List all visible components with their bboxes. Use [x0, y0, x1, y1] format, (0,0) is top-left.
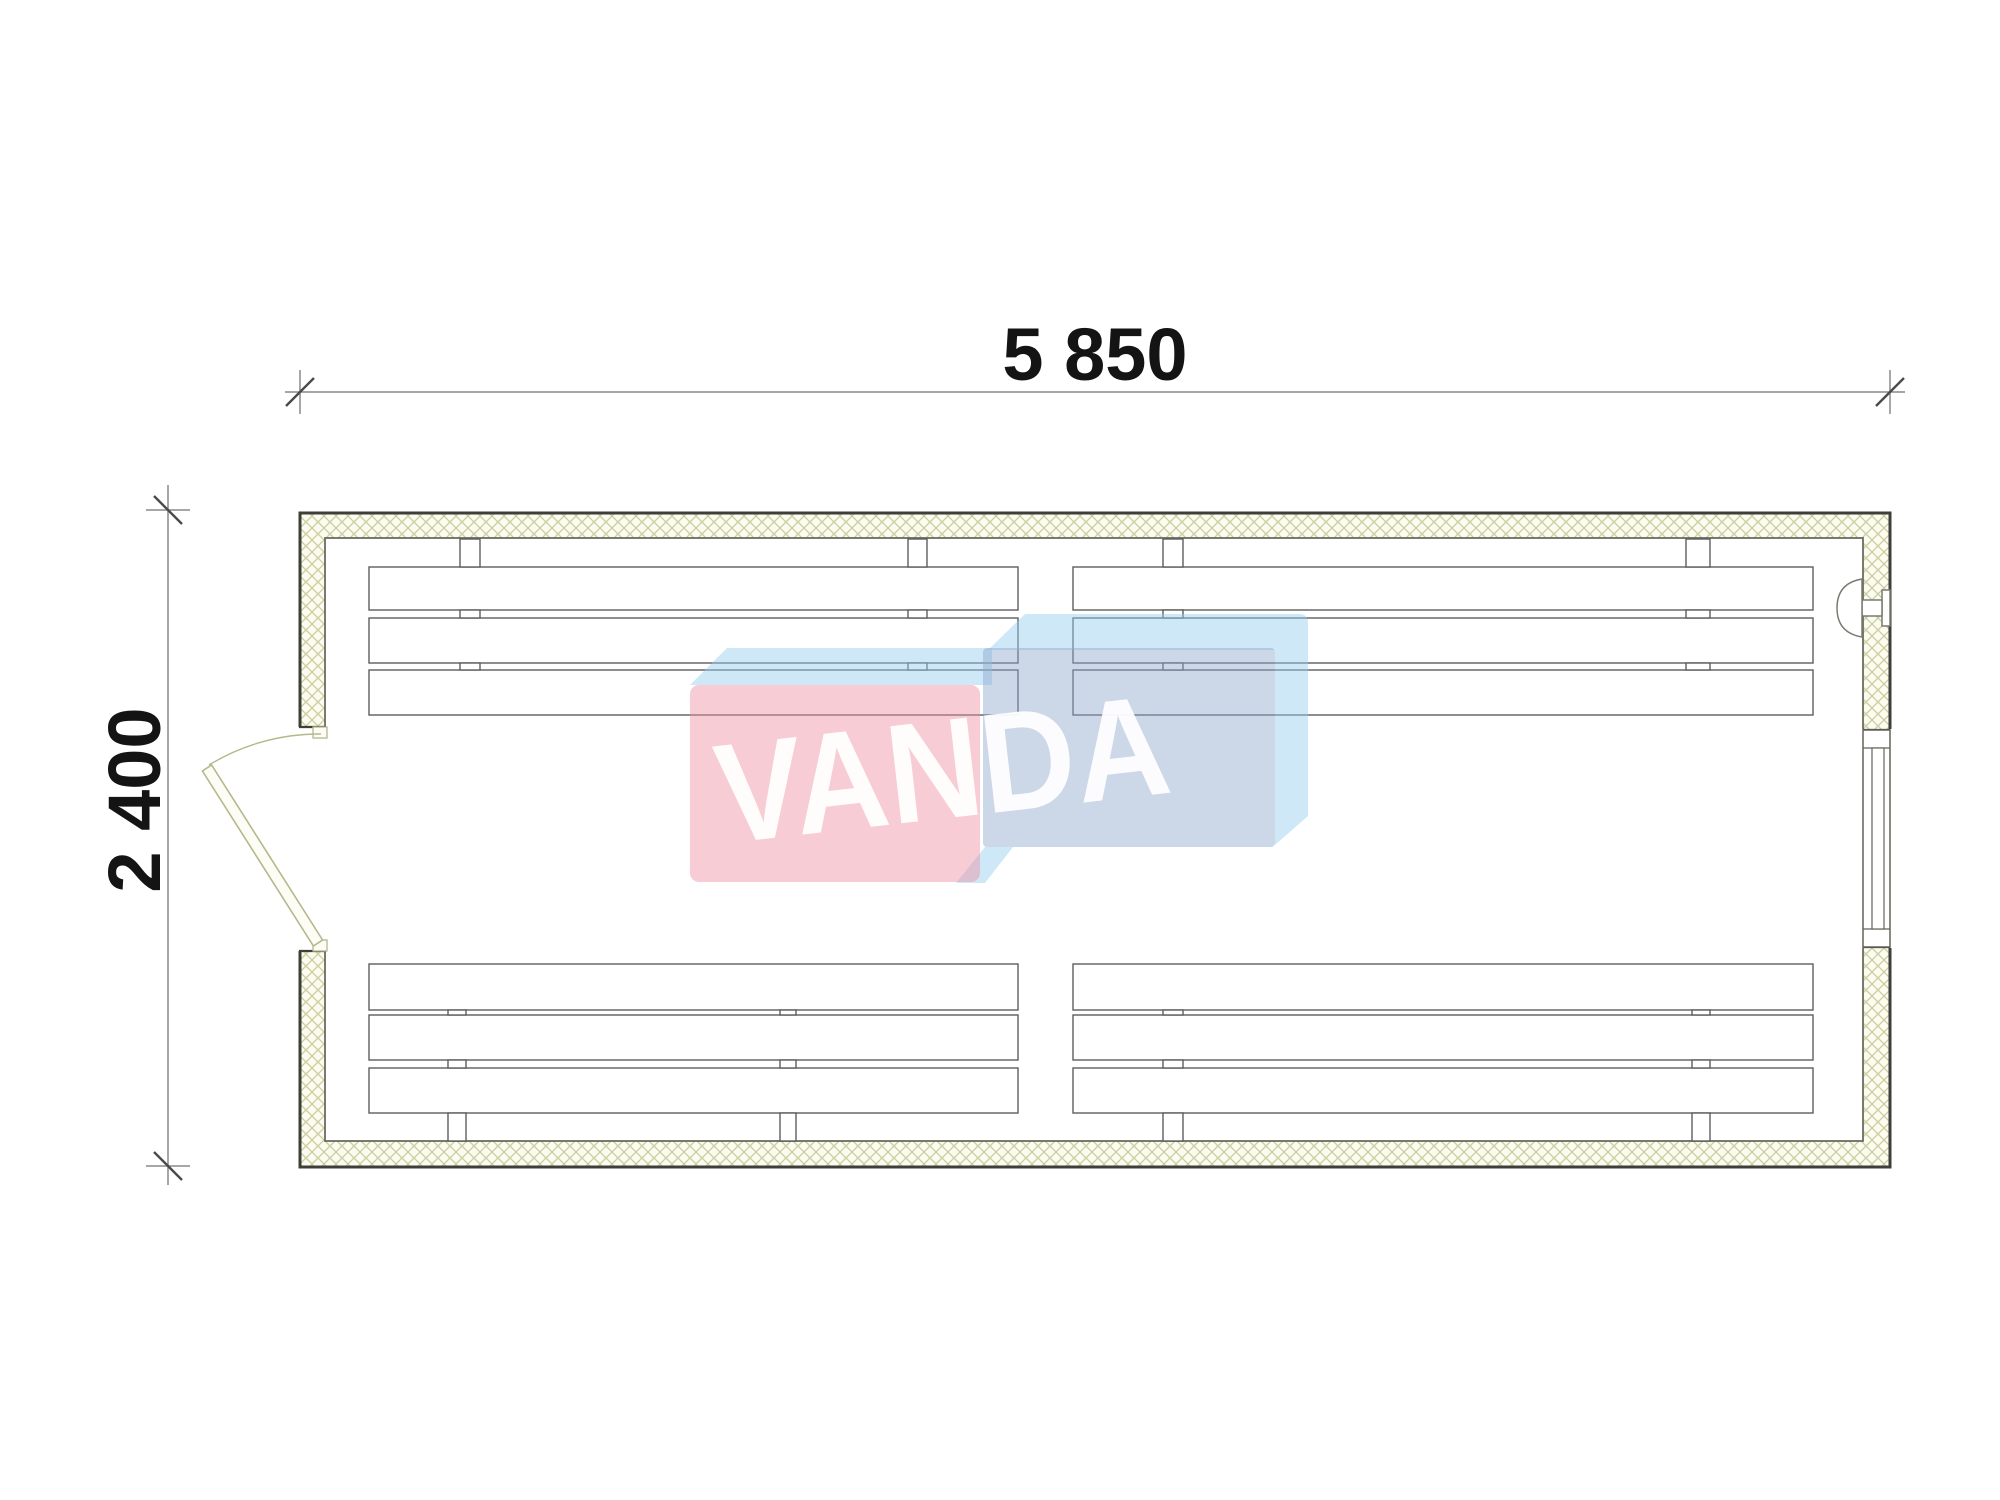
- bench-post: [1686, 610, 1710, 618]
- window-glazing: [1872, 748, 1884, 929]
- dimension-width-label: 5 850: [1002, 313, 1187, 396]
- bench-slat: [369, 567, 1018, 610]
- bench-post: [1692, 1060, 1710, 1068]
- bench-post: [908, 539, 927, 567]
- bench-post: [1163, 1010, 1183, 1015]
- bench-post: [1163, 1113, 1183, 1141]
- bench-bottom-left: [369, 964, 1018, 1141]
- bench-post: [780, 1010, 796, 1015]
- dimension-width: 5 850: [285, 313, 1905, 414]
- bench-post: [1163, 539, 1183, 567]
- bench-post: [448, 1010, 466, 1015]
- floor-plan-canvas: 5 850 2 400: [0, 0, 2000, 1500]
- bench-post: [460, 539, 480, 567]
- logo-top-band: [690, 648, 992, 685]
- bench-post: [1163, 1060, 1183, 1068]
- window-right: [1861, 729, 1892, 948]
- bench-bottom-right: [1073, 964, 1813, 1141]
- bench-post: [448, 1060, 466, 1068]
- drawing-page: 5 850 2 400: [0, 0, 2000, 1500]
- bench-post: [1692, 1113, 1710, 1141]
- bench-slat: [369, 1068, 1018, 1113]
- bench-post: [460, 663, 480, 670]
- bench-post: [908, 610, 927, 618]
- bench-post: [448, 1113, 466, 1141]
- door-frame-tab: [313, 727, 327, 738]
- bench-post: [460, 610, 480, 618]
- lamp-wall-plate: [1882, 590, 1890, 626]
- lamp-stem: [1862, 600, 1882, 616]
- bench-slat: [369, 964, 1018, 1010]
- bench-slat: [1073, 567, 1813, 610]
- entrance-door: [202, 727, 327, 951]
- vanda-watermark: VANDA: [690, 614, 1308, 883]
- bench-post: [1692, 1010, 1710, 1015]
- bench-slat: [1073, 1068, 1813, 1113]
- bench-post: [780, 1113, 796, 1141]
- dimension-height-label: 2 400: [93, 707, 176, 892]
- bench-slat: [1073, 964, 1813, 1010]
- bench-post: [1686, 663, 1710, 670]
- bench-slat: [369, 1015, 1018, 1060]
- bench-slat: [1073, 1015, 1813, 1060]
- lamp-body: [1837, 579, 1862, 637]
- dimension-height: 2 400: [93, 485, 190, 1185]
- bench-post: [780, 1060, 796, 1068]
- bench-post: [1686, 539, 1710, 567]
